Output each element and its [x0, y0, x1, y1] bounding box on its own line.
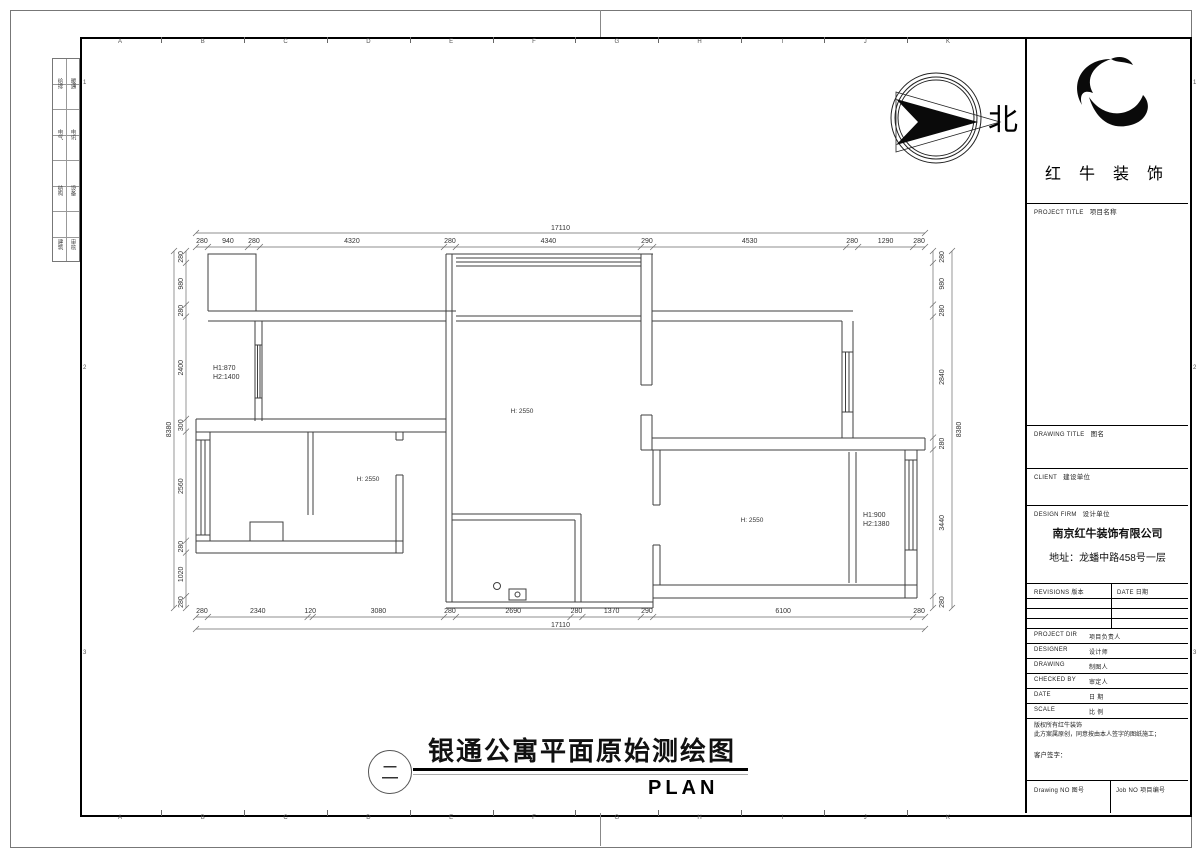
svg-text:280: 280	[444, 238, 456, 245]
svg-text:280: 280	[939, 596, 946, 608]
svg-text:280: 280	[196, 238, 208, 245]
svg-text:2400: 2400	[178, 360, 185, 376]
title-underline-thin	[413, 774, 748, 775]
svg-text:280: 280	[178, 596, 185, 608]
copyright-notice: 版权所有红牛装饰 此方案属原创，同意按由本人签字的图纸施工；	[1034, 722, 1160, 740]
fixture-symbol	[509, 589, 526, 600]
svg-text:280: 280	[913, 608, 925, 615]
svg-text:17110: 17110	[551, 225, 570, 232]
svg-text:300: 300	[178, 419, 185, 431]
svg-text:3080: 3080	[371, 608, 387, 615]
svg-text:280: 280	[846, 238, 858, 245]
svg-text:280: 280	[571, 608, 583, 615]
north-label: 北	[988, 104, 1018, 137]
company-logo	[1027, 47, 1188, 167]
svg-text:280: 280	[248, 238, 260, 245]
svg-text:280: 280	[178, 305, 185, 317]
drain-symbol	[494, 583, 501, 590]
cabinet-symbol	[250, 522, 283, 541]
staff-label: SCALE	[1034, 707, 1055, 713]
drawing-no-label: Drawing NO 图号	[1034, 785, 1084, 794]
logo-text: 红 牛 装 饰	[1027, 160, 1188, 184]
svg-text:2560: 2560	[178, 478, 185, 494]
revisions-header: REVISIONS 版本	[1034, 587, 1084, 596]
staff-label: DRAWING	[1034, 662, 1065, 668]
drawing-title-label: DRAWING TITLE图名	[1034, 428, 1104, 438]
svg-text:8380: 8380	[166, 422, 173, 438]
svg-text:280: 280	[939, 305, 946, 317]
sheet-number-circle: 二	[368, 750, 412, 794]
svg-text:6100: 6100	[775, 608, 791, 615]
svg-text:2340: 2340	[250, 608, 266, 615]
svg-text:1290: 1290	[878, 238, 894, 245]
svg-text:280: 280	[178, 251, 185, 263]
staff-label-cn: 项目负责人	[1089, 632, 1121, 641]
left-window-h1: H1:870	[213, 365, 236, 372]
company-address: 地址：龙蟠中路458号一层	[1027, 549, 1188, 564]
svg-text:290: 290	[641, 608, 653, 615]
company-name: 南京红牛装饰有限公司	[1027, 525, 1188, 541]
staff-label: PROJECT DIR	[1034, 632, 1077, 638]
svg-text:4320: 4320	[344, 238, 360, 245]
svg-text:280: 280	[913, 238, 925, 245]
job-no-label: Job NO 项目编号	[1116, 785, 1165, 794]
client-label: CLIENT建设单位	[1034, 471, 1090, 481]
svg-text:280: 280	[939, 438, 946, 450]
staff-label: DESIGNER	[1034, 647, 1068, 653]
room2-height-label: H: 2550	[357, 476, 380, 483]
svg-text:980: 980	[939, 278, 946, 290]
staff-label-cn: 比 例	[1089, 707, 1104, 716]
fixture-knob	[515, 592, 520, 597]
svg-text:1020: 1020	[178, 566, 185, 582]
staff-label-cn: 日 期	[1089, 692, 1104, 701]
svg-text:280: 280	[178, 541, 185, 553]
svg-text:4340: 4340	[541, 238, 557, 245]
svg-text:8380: 8380	[956, 422, 963, 438]
svg-text:940: 940	[222, 238, 234, 245]
svg-text:280: 280	[196, 608, 208, 615]
staff-label-cn: 设计师	[1089, 647, 1108, 656]
title-block: 红 牛 装 饰 PROJECT TITLE项目名称 DRAWING TITLE图…	[1027, 37, 1188, 813]
dimension-annotations: 2809402804320280434029045302801290280171…	[166, 225, 963, 632]
svg-text:1370: 1370	[604, 608, 620, 615]
staff-label-cn: 审定人	[1089, 677, 1108, 686]
svg-text:280: 280	[444, 608, 456, 615]
svg-text:980: 980	[178, 278, 185, 290]
date-header: DATE 日期	[1117, 587, 1148, 596]
living-height-label: H: 2550	[511, 408, 534, 415]
right-window-h1: H1:900	[863, 512, 886, 519]
right-window-h2: H2:1380	[863, 521, 890, 528]
svg-text:290: 290	[641, 238, 653, 245]
client-signature-label: 客户签字：	[1034, 749, 1067, 759]
sheet-title: 银通公寓平面原始测绘图	[428, 731, 736, 768]
svg-text:280: 280	[939, 251, 946, 263]
right-room-height-label: H: 2550	[741, 517, 764, 524]
north-arrow: 北	[891, 73, 1018, 163]
project-title-label: PROJECT TITLE项目名称	[1034, 206, 1117, 216]
staff-label: CHECKED BY	[1034, 677, 1076, 683]
svg-text:2840: 2840	[939, 369, 946, 385]
sheet-subtitle: PLAN	[648, 777, 718, 800]
svg-text:17110: 17110	[551, 622, 570, 629]
left-window-h2: H2:1400	[213, 374, 240, 381]
svg-text:120: 120	[304, 608, 316, 615]
svg-text:3440: 3440	[939, 515, 946, 531]
svg-text:4530: 4530	[742, 238, 758, 245]
walls	[196, 254, 925, 608]
title-underline	[413, 768, 748, 771]
blueprint-page: { "frame": { "grid_letters": ["A","B","C…	[0, 0, 1200, 860]
staff-label-cn: 制图人	[1089, 662, 1108, 671]
design-firm-label: DESIGN FIRM设计单位	[1034, 508, 1110, 518]
staff-label: DATE	[1034, 692, 1051, 698]
svg-text:2690: 2690	[505, 608, 521, 615]
